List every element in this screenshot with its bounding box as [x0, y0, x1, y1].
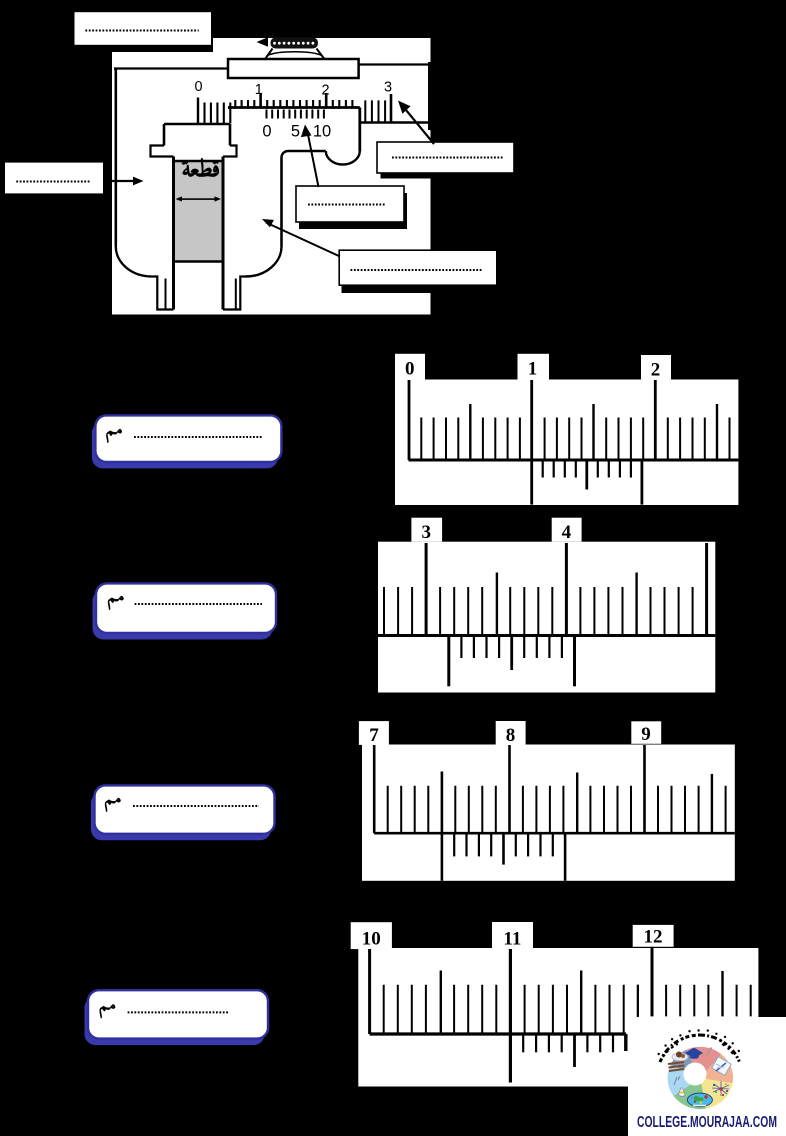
- svg-text:0: 0: [405, 359, 415, 380]
- svg-text:3: 3: [384, 80, 392, 96]
- svg-text:4: 4: [562, 522, 572, 543]
- svg-text:3: 3: [422, 522, 432, 543]
- svg-text:1: 1: [528, 359, 538, 380]
- svg-text:10: 10: [313, 123, 331, 141]
- svg-text:2: 2: [651, 360, 661, 381]
- svg-text:1: 1: [255, 82, 263, 98]
- svg-text:12: 12: [644, 927, 663, 948]
- svg-text:11: 11: [503, 929, 521, 950]
- svg-text:COLLEGE.MOURAJAA.COM: COLLEGE.MOURAJAA.COM: [637, 1114, 777, 1131]
- svg-text:9: 9: [641, 724, 651, 745]
- svg-text:0: 0: [195, 79, 203, 95]
- svg-text:5: 5: [291, 123, 300, 141]
- svg-text:2: 2: [322, 83, 330, 99]
- svg-text:10: 10: [362, 929, 381, 950]
- svg-text:8: 8: [506, 725, 516, 746]
- svg-text:7: 7: [369, 725, 379, 746]
- svg-text:0: 0: [262, 123, 271, 141]
